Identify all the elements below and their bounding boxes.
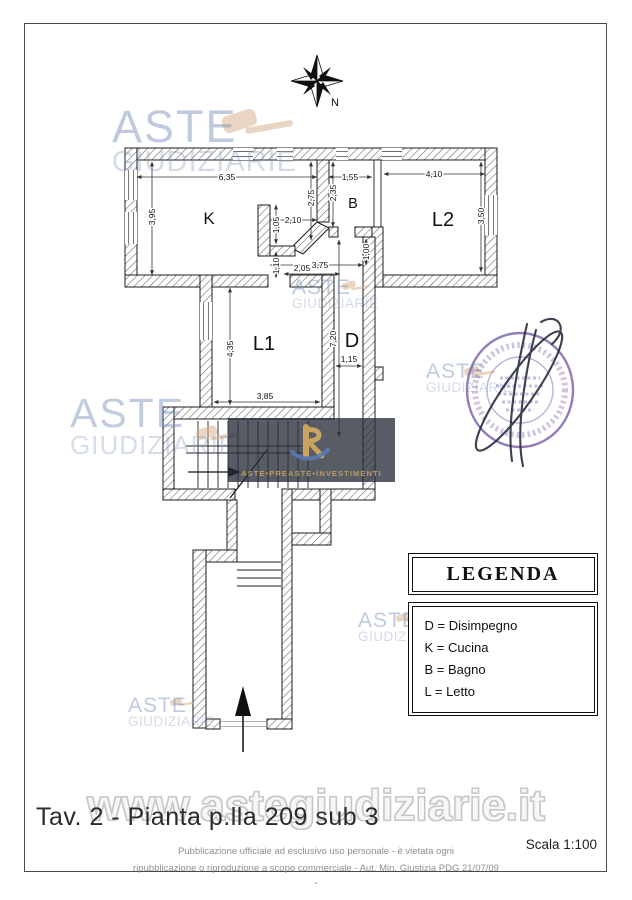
- legend-item: L = Letto: [425, 681, 582, 703]
- disclaimer-line-1: Pubblicazione ufficiale ad esclusivo uso…: [24, 846, 608, 857]
- legend-item: K = Cucina: [425, 637, 582, 659]
- legend-items-box: D = Disimpegno K = Cucina B = Bagno L = …: [408, 602, 598, 716]
- legend: LEGENDA D = Disimpegno K = Cucina B = Ba…: [408, 553, 598, 716]
- banner-logo-icon: [276, 419, 346, 463]
- legend-item: B = Bagno: [425, 659, 582, 681]
- sheet-title: Tav. 2 - Pianta p.lla 209 sub 3: [36, 803, 379, 832]
- banner-watermark: ASTE•PREASTE•INVESTIMENTI: [228, 418, 395, 482]
- footer-dash: -: [24, 878, 608, 889]
- plan-sheet: 6,35 1,55 4,10 3,95 2,75 2,35 2,10 1,05 …: [0, 0, 632, 900]
- legend-title: LEGENDA: [413, 558, 594, 591]
- banner-text: ASTE•PREASTE•INVESTIMENTI: [228, 469, 395, 478]
- legend-title-box: LEGENDA: [408, 553, 598, 595]
- legend-item: D = Disimpegno: [425, 615, 582, 637]
- disclaimer-line-2: ripubblicazione o riproduzione a scopo c…: [24, 863, 608, 874]
